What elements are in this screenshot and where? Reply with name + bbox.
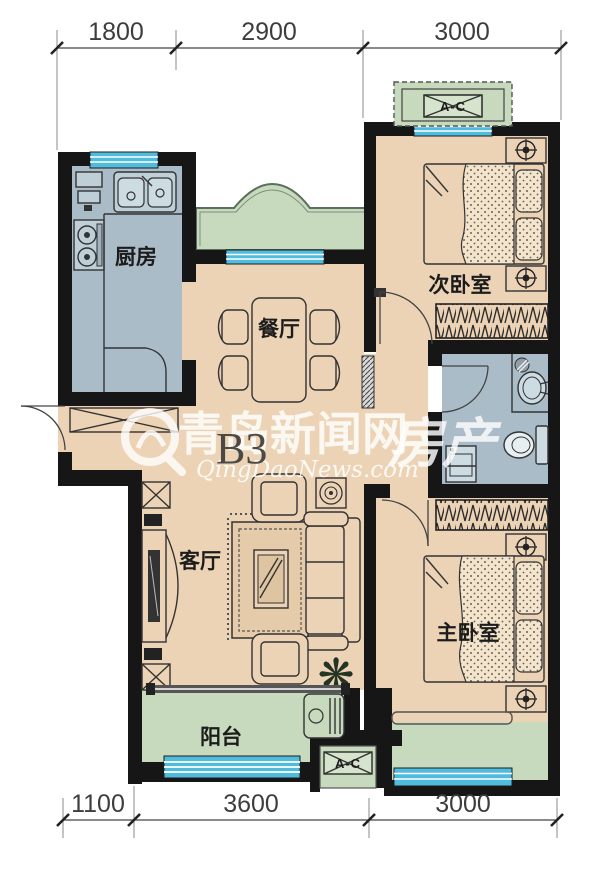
dimension-bottom: 1100 3600 3000 — [57, 786, 563, 838]
radiator-icon — [362, 356, 374, 408]
unit-label: B3 — [216, 424, 267, 473]
speaker-box-icon — [144, 514, 162, 526]
ac-unit-top: A-C — [394, 82, 512, 126]
balcony-label: 阳台 — [200, 725, 242, 749]
kitchen-sink-icon — [114, 172, 176, 212]
dim-top-2: 2900 — [241, 18, 297, 46]
dining-chair-icon — [310, 310, 340, 344]
dining-window — [226, 250, 324, 264]
bed-icon — [424, 164, 544, 264]
bed-icon — [424, 556, 544, 682]
nightstand-icon — [506, 686, 546, 712]
dining-label: 餐厅 — [258, 317, 300, 341]
dining-table-icon — [252, 298, 306, 402]
nightstand-icon — [506, 138, 546, 163]
balcony-appliance-icon — [304, 694, 344, 738]
speaker-box-icon — [144, 648, 162, 660]
floor-plan-page: 1800 2900 3000 — [0, 0, 600, 872]
sofa-icon — [304, 512, 360, 650]
ac-unit-bottom: A-C — [320, 746, 376, 788]
living-label: 客厅 — [179, 549, 221, 573]
watermark-section: 房产 — [387, 412, 502, 475]
wardrobe-icon — [436, 500, 548, 530]
armchair-icon — [252, 634, 308, 684]
balcony-window — [164, 756, 300, 778]
dim-bottom-3: 3000 — [435, 790, 491, 818]
dining-bay-window — [196, 184, 372, 250]
watermark: 青岛新闻网 QingDaoNews.com 房产 B3 — [125, 407, 502, 483]
master-label: 主卧室 — [437, 621, 500, 645]
nightstand-icon — [506, 266, 546, 291]
floor-drain-icon — [515, 358, 529, 372]
master-bay-window — [394, 768, 512, 786]
ac-label-top: A-C — [440, 99, 466, 114]
wardrobe-icon — [436, 304, 548, 338]
dim-top-3: 3000 — [434, 18, 490, 46]
dim-top-1: 1800 — [88, 18, 144, 46]
dim-bottom-1: 1100 — [71, 790, 125, 818]
stove-icon — [74, 220, 104, 270]
ac-label-bottom: A-C — [335, 756, 361, 771]
kitchen-window — [90, 152, 158, 168]
dining-chair-icon — [219, 356, 249, 390]
dim-bottom-2: 3600 — [223, 790, 279, 818]
coffee-table-icon — [254, 550, 288, 608]
kitchen-label: 厨房 — [115, 245, 157, 269]
bedroom2-label: 次卧室 — [429, 273, 492, 297]
watermark-site-name: 青岛新闻网 — [178, 407, 408, 461]
dining-chair-icon — [310, 356, 340, 390]
cabinet-icon — [142, 482, 170, 508]
dining-chair-icon — [219, 310, 249, 344]
floor-plan-svg: 1800 2900 3000 — [0, 0, 600, 872]
